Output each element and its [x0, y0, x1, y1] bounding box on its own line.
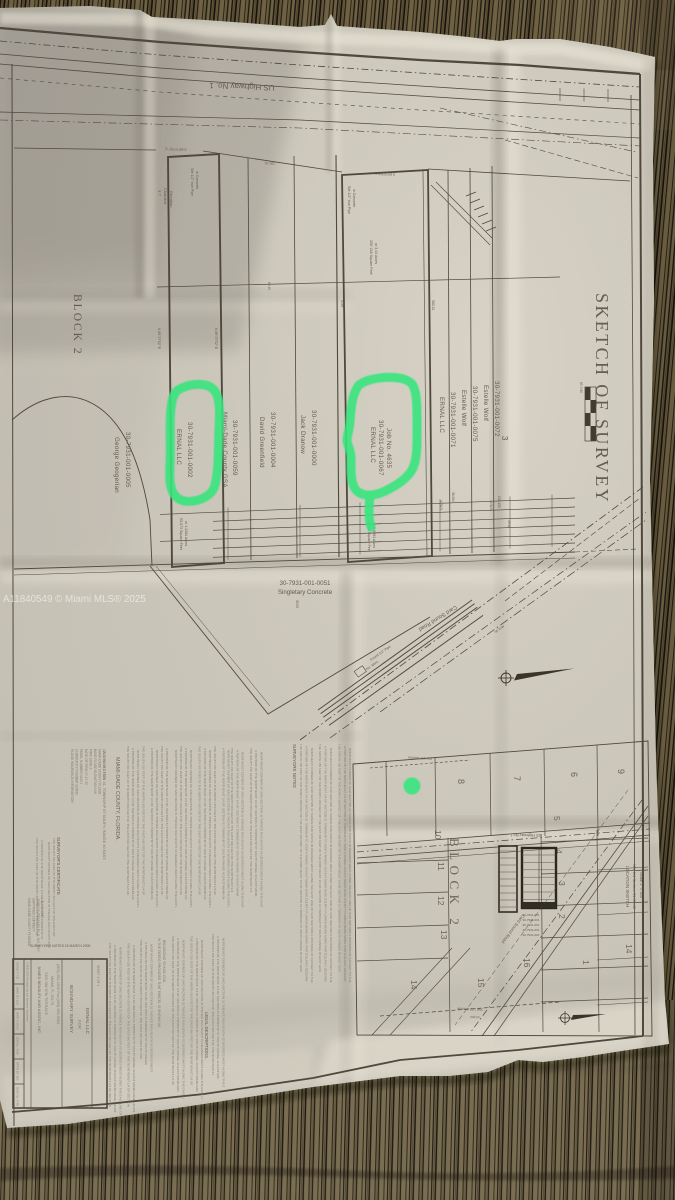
svg-text:THE SOUTH 150 FEET OF THE NORT: THE SOUTH 150 FEET OF THE NORTH 300 FEET… — [337, 744, 341, 972]
svg-text:FIRM ZONE X: FIRM ZONE X — [88, 749, 92, 770]
svg-text:DATE OF FIRM 07-17-95: DATE OF FIRM 07-17-95 — [84, 749, 88, 785]
svg-text:SW 157 Avenue: SW 157 Avenue — [408, 756, 432, 761]
svg-text:APP'D BY JEB: APP'D BY JEB — [16, 1062, 20, 1081]
svg-text:A PORTION OF THE NORTHEAST 1/4: A PORTION OF THE NORTHEAST 1/4 OF SECTIO… — [216, 936, 220, 1080]
svg-text:A PORTION OF THE NORTHEAST 1/4: A PORTION OF THE NORTHEAST 1/4 OF SECTIO… — [150, 748, 154, 900]
svg-text:NORTHEAST CORNER OF SAID SECTI: NORTHEAST CORNER OF SAID SECTION 31 THEN… — [189, 750, 193, 908]
svg-text:2: 2 — [557, 914, 567, 919]
svg-text:NORTHEAST CORNER OF SAID SECTI: NORTHEAST CORNER OF SAID SECTION 31 THEN… — [118, 947, 122, 1118]
svg-text:BASE FLOOD ELEVATION N/A: BASE FLOOD ELEVATION N/A — [93, 749, 97, 795]
svg-text:N 89°: N 89° — [340, 300, 344, 309]
svg-text:150' 248 Square Feet: 150' 248 Square Feet — [369, 240, 373, 274]
svg-text:LOCATION SKETCH: LOCATION SKETCH — [625, 866, 630, 907]
svg-text:BELONGING TO KOK COK.: BELONGING TO KOK COK. — [162, 940, 166, 983]
svg-text:A PORTION OF THE NORTHEAST 1/4: A PORTION OF THE NORTHEAST 1/4 OF SECTIO… — [203, 748, 207, 900]
svg-text:NORTHEAST CORNER OF SAID SECTI: NORTHEAST CORNER OF SAID SECTION 31 THEN… — [310, 748, 314, 983]
svg-text:ERNAL LLC: ERNAL LLC — [369, 427, 376, 463]
svg-text:Estelle Wolf: Estelle Wolf — [460, 390, 467, 426]
svg-text:12: 12 — [436, 896, 446, 906]
svg-text:PANEL NUMBER 0445 J: PANEL NUMBER 0445 J — [79, 749, 83, 785]
svg-text:FLOOD INSURANCE INFORMATION: FLOOD INSURANCE INFORMATION — [70, 749, 74, 803]
svg-text:L.B. NO. 6867: L.B. NO. 6867 — [40, 898, 44, 918]
svg-text:DATE 3-15-05: DATE 3-15-05 — [16, 1012, 20, 1030]
svg-text:A PORTION OF THE NORTHEAST 1/4: A PORTION OF THE NORTHEAST 1/4 OF SECTIO… — [144, 942, 148, 1065]
svg-text:A PORTION OF THE NORTHEAST 1/4: A PORTION OF THE NORTHEAST 1/4 OF SECTIO… — [222, 748, 226, 900]
svg-text:A PORTION OF THE NORTHEAST 1/4: A PORTION OF THE NORTHEAST 1/4 OF SECTIO… — [165, 748, 169, 900]
svg-text:30-7931-001-0067: 30-7931-001-0067 — [377, 420, 384, 476]
svg-text:A PORTION OF THE NORTHEAST 1/4: A PORTION OF THE NORTHEAST 1/4 OF SECTIO… — [195, 938, 199, 1093]
svg-text:30-7931-001: 30-7931-001 — [522, 928, 539, 932]
svg-text:NORTHEAST CORNER OF SAID SECTI: NORTHEAST CORNER OF SAID SECTION 31 THEN… — [348, 748, 352, 983]
svg-text:A PORTION OF THE NORTHEAST 1/4: A PORTION OF THE NORTHEAST 1/4 OF SECTIO… — [184, 748, 188, 900]
svg-text:A PORTION OF THE NORTHEAST 1/4: A PORTION OF THE NORTHEAST 1/4 OF SECTIO… — [343, 746, 347, 981]
svg-text:5: 5 — [552, 816, 562, 821]
svg-text:NORTHEAST CORNER OF SAID SECTI: NORTHEAST CORNER OF SAID SECTION 31 THEN… — [174, 750, 178, 908]
svg-text:7: 7 — [512, 776, 522, 781]
svg-text:A11840549 © Miami MLS® 2025: A11840549 © Miami MLS® 2025 — [3, 594, 146, 605]
svg-text:NW 1/4 Section 31-59-40: NW 1/4 Section 31-59-40 — [632, 864, 637, 910]
svg-text:in Concrete: in Concrete — [352, 189, 356, 207]
svg-text:or 1.2284 Acres: or 1.2284 Acres — [184, 521, 188, 546]
svg-text:Job No. 4635: Job No. 4635 — [385, 428, 392, 469]
svg-text:NORTHEAST CORNER OF SAID SECTI: NORTHEAST CORNER OF SAID SECTION 31 THEN… — [200, 940, 204, 1099]
svg-text:3.7': 3.7' — [157, 190, 162, 197]
svg-text:Scale 1" = 300': Scale 1" = 300' — [639, 872, 644, 899]
svg-text:BLOCK 2: BLOCK 2 — [447, 838, 462, 930]
svg-text:THE SOUTH 150 FEET OF THE NORT: THE SOUTH 150 FEET OF THE NORTH 300 FEET… — [211, 934, 215, 1076]
svg-text:THE SOUTH 150 FEET OF THE NORT: THE SOUTH 150 FEET OF THE NORTH 300 FEET… — [249, 748, 253, 892]
svg-text:MIAMI-DADE COUNTY FLOOD: MIAMI-DADE COUNTY FLOOD — [98, 749, 102, 795]
svg-text:THE SOUTH 150 FEET OF THE NORT: THE SOUTH 150 FEET OF THE NORTH 300 FEET… — [160, 746, 164, 895]
svg-text:NORTHEAST CORNER OF SAID SECTI: NORTHEAST CORNER OF SAID SECTION 31 THEN… — [208, 750, 212, 908]
svg-text:JAMES BEASLEY AND ASSOC., INC.: JAMES BEASLEY AND ASSOC., INC. — [37, 966, 42, 1034]
svg-text:Singletary Concrete: Singletary Concrete — [278, 589, 333, 596]
svg-text:36.564: 36.564 — [451, 492, 455, 502]
svg-text:THE SOUTH 150 FEET OF THE NORT: THE SOUTH 150 FEET OF THE NORTH 300 FEET… — [108, 943, 112, 1107]
svg-text:30-7931-001-0051: 30-7931-001-0051 — [280, 580, 331, 587]
svg-text:30.00: 30.00 — [295, 600, 299, 608]
svg-text:ERNAL LLC: ERNAL LLC — [84, 1008, 90, 1034]
svg-text:9: 9 — [616, 769, 626, 774]
svg-text:THE SOUTH 150 FEET OF THE NORT: THE SOUTH 150 FEET OF THE NORTH 300 FEET… — [171, 936, 175, 1085]
svg-text:MIAMI, FL 33173: MIAMI, FL 33173 — [50, 976, 54, 1005]
svg-text:COMMUNITY NUMBER 120635: COMMUNITY NUMBER 120635 — [75, 749, 79, 795]
svg-text:30-7931-001: 30-7931-001 — [522, 933, 539, 937]
svg-text:30-7931-001-0002: 30-7931-001-0002 — [186, 422, 193, 478]
svg-text:DWG. BY JLB: DWG. BY JLB — [16, 987, 20, 1005]
svg-text:or 3.44 Acres: or 3.44 Acres — [374, 243, 378, 264]
svg-text:Chainlink: Chainlink — [163, 188, 168, 204]
svg-text:SHEET 1 OF 1: SHEET 1 OF 1 — [96, 965, 100, 986]
svg-text:A PORTION OF THE NORTHEAST 1/4: A PORTION OF THE NORTHEAST 1/4 OF SECTIO… — [235, 750, 239, 897]
svg-text:N 89°37'52" E: N 89°37'52" E — [157, 328, 161, 350]
svg-text:16: 16 — [522, 958, 532, 968]
svg-text:DWG No. 4759: DWG No. 4759 — [16, 1087, 20, 1106]
svg-text:SCALE 1"=30': SCALE 1"=30' — [16, 962, 20, 980]
svg-text:ERNAL LLC: ERNAL LLC — [175, 429, 182, 465]
svg-text:BOUNDARY SURVEY: BOUNDARY SURVEY — [68, 985, 74, 1034]
svg-text:3: 3 — [500, 436, 509, 441]
svg-text:30-7931-001-0000: 30-7931-001-0000 — [310, 410, 317, 466]
svg-text:THE SOUTH 150 FEET OF THE NORT: THE SOUTH 150 FEET OF THE NORTH 300 FEET… — [52, 838, 56, 937]
svg-text:11: 11 — [436, 862, 446, 871]
svg-text:David Greenfield: David Greenfield — [258, 417, 265, 468]
svg-text:Estelle Wolf: Estelle Wolf — [482, 385, 489, 421]
svg-text:THE SOUTH 150 FEET OF THE NORT: THE SOUTH 150 FEET OF THE NORTH 300 FEET… — [127, 943, 131, 1107]
svg-text:48 W: 48 W — [507, 520, 511, 527]
svg-text:42 W.S.: 42 W.S. — [439, 500, 443, 511]
svg-text:THE SOUTH 150 FEET OF THE NORT: THE SOUTH 150 FEET OF THE NORTH 300 FEET… — [318, 744, 322, 972]
svg-text:THE SOUTH 150 FEET OF THE NORT: THE SOUTH 150 FEET OF THE NORTH 300 FEET… — [141, 746, 145, 895]
svg-text:30-7931-001-0005: 30-7931-001-0005 — [124, 432, 131, 488]
svg-text:30-7931-001-0004: 30-7931-001-0004 — [269, 412, 276, 468]
svg-text:IN THE DEEDS PROVIDED THAT PAR: IN THE DEEDS PROVIDED THAT PARCEL IS SHO… — [157, 938, 161, 1028]
svg-text:44 W.S.: 44 W.S. — [489, 500, 493, 511]
svg-text:NORTHEAST CORNER OF SAID SECTI: NORTHEAST CORNER OF SAID SECTION 31 THEN… — [329, 748, 333, 983]
svg-text:14: 14 — [624, 944, 634, 954]
svg-text:BLOCK 2: BLOCK 2 — [71, 294, 83, 356]
svg-text:NORTHEAST CORNER OF SAID SECTI: NORTHEAST CORNER OF SAID SECTION 31 THEN… — [260, 752, 264, 908]
svg-text:NORTHEAST CORNER OF SAID SECTI: NORTHEAST CORNER OF SAID SECTION 31 THEN… — [136, 750, 140, 908]
svg-text:A PORTION OF THE NORTHEAST 1/4: A PORTION OF THE NORTHEAST 1/4 OF SECTIO… — [132, 945, 136, 1113]
svg-text:THE SOUTH 150 FEET OF THE NORT: THE SOUTH 150 FEET OF THE NORTH 300 FEET… — [126, 746, 130, 895]
svg-text:THE SOUTH 150 FEET OF THE NORT: THE SOUTH 150 FEET OF THE NORTH 300 FEET… — [198, 746, 202, 895]
svg-text:THE SOUTH 150 FEET OF THE NORT: THE SOUTH 150 FEET OF THE NORTH 300 FEET… — [179, 746, 183, 895]
svg-text:N 89°37'52" E: N 89°37'52" E — [214, 328, 218, 350]
svg-text:NORTHEAST CORNER OF SAID SECTI: NORTHEAST CORNER OF SAID SECTION 31 THEN… — [149, 944, 153, 1072]
svg-text:CERTIFIED CORRECT: CERTIFIED CORRECT — [31, 898, 35, 931]
svg-text:NORTHEAST CORNER OF SAID SECTI: NORTHEAST CORNER OF SAID SECTION 31 THEN… — [241, 752, 245, 908]
svg-text:15: 15 — [476, 978, 486, 988]
svg-text:A PORTION OF THE NORTHEAST 1/4: A PORTION OF THE NORTHEAST 1/4 OF SECTIO… — [176, 938, 180, 1093]
svg-text:60 40: 60 40 — [267, 282, 271, 290]
svg-text:A 4635 2005 Revisions by: A 4635 2005 Revisions by and Remarks Gen… — [26, 962, 30, 1022]
svg-text:George Geogerian: George Geogerian — [113, 437, 120, 493]
svg-text:NORTHEAST CORNER OF SAID SECTI: NORTHEAST CORNER OF SAID SECTION 31 THEN… — [155, 750, 159, 908]
svg-text:THE SOUTH 150 FEET OF THE NORT: THE SOUTH 150 FEET OF THE NORTH 300 FEET… — [230, 748, 234, 892]
svg-text:in Concrete: in Concrete — [195, 171, 199, 189]
svg-text:A PORTION OF THE NORTHEAST 1/4: A PORTION OF THE NORTHEAST 1/4 OF SECTIO… — [131, 748, 135, 900]
svg-text:MIAMI-DADE COUNTY FLORIDA: MIAMI-DADE COUNTY FLORIDA — [27, 898, 31, 947]
svg-text:A PORTION OF THE NORTHEAST 1/4: A PORTION OF THE NORTHEAST 1/4 OF SECTIO… — [304, 746, 308, 981]
svg-text:A PORTION OF THE NORTHEAST 1/4: A PORTION OF THE NORTHEAST 1/4 OF SECTIO… — [254, 750, 258, 897]
svg-text:MIAMI-DADE COUNTY, FLORIDA.: MIAMI-DADE COUNTY, FLORIDA. — [114, 757, 120, 841]
svg-text:7400 SW 87th TERRACE: 7400 SW 87th TERRACE — [44, 972, 48, 1016]
svg-text:A PORTION OF THE NORTHEAST 1/4: A PORTION OF THE NORTHEAST 1/4 OF SECTIO… — [324, 746, 328, 981]
svg-text:225.76: 225.76 — [264, 161, 275, 165]
svg-text:30-7931-001-0075: 30-7931-001-0075 — [471, 386, 478, 442]
svg-text:S 89°37'52" E: S 89°37'52" E — [164, 147, 186, 152]
svg-text:THE SOUTH 150 FEET OF THE NORT: THE SOUTH 150 FEET OF THE NORTH 300 FEET… — [190, 936, 194, 1085]
svg-text:FOR: FOR — [77, 1020, 82, 1029]
svg-text:Elevation: Elevation — [169, 191, 174, 207]
svg-text:JOB No. 4635: JOB No. 4635 — [16, 1037, 20, 1055]
svg-text:1: 1 — [581, 960, 591, 965]
svg-text:Set 1/2" Iron Pipe: Set 1/2" Iron Pipe — [190, 168, 194, 196]
svg-text:ERNAL LLC: ERNAL LLC — [438, 397, 445, 433]
svg-text:ALL IN SECTION 31, TOWNSHIP 57: ALL IN SECTION 31, TOWNSHIP 57 SOUTH, RA… — [102, 751, 106, 860]
svg-text:8: 8 — [456, 779, 466, 784]
svg-text:583.31: 583.31 — [431, 300, 435, 310]
svg-text:US Highway No 1: US Highway No 1 — [509, 833, 541, 839]
svg-text:Jack Dranow: Jack Dranow — [299, 415, 306, 454]
svg-text:LEGAL DESCRIPTIONS.: LEGAL DESCRIPTIONS. — [204, 1012, 209, 1059]
svg-text:Set 1/2" Iron Pipe: Set 1/2" Iron Pipe — [347, 186, 351, 214]
svg-text:THE SOUTH 150 FEET OF THE NORT: THE SOUTH 150 FEET OF THE NORTH 300 FEET… — [213, 746, 217, 895]
svg-text:30-7931-001-0059: 30-7931-001-0059 — [231, 420, 238, 476]
svg-text:NORTHEAST CORNER OF SAID SECTI: NORTHEAST CORNER OF SAID SECTION 31 THEN… — [181, 940, 185, 1099]
svg-text:50.000: 50.000 — [470, 1015, 480, 1019]
svg-text:30-7931-001-0072: 30-7931-001-0072 — [493, 381, 500, 437]
svg-text:A PORTION OF THE NORTHEAST 1/4: A PORTION OF THE NORTHEAST 1/4 OF SECTIO… — [113, 945, 117, 1113]
svg-text:105.130: 105.130 — [497, 496, 501, 508]
svg-text:30-7931-001: 30-7931-001 — [522, 923, 539, 927]
svg-text:SURVEYORS NOTES 15 MARCH 2005: SURVEYORS NOTES 15 MARCH 2005 — [30, 944, 91, 948]
svg-text:3: 3 — [557, 881, 567, 886]
svg-text:14: 14 — [409, 980, 419, 990]
svg-text:NORTHEAST CORNER OF SAID SECTI: NORTHEAST CORNER OF SAID SECTION 31 THEN… — [221, 938, 225, 1088]
svg-text:13: 13 — [439, 930, 449, 940]
svg-text:SKETCH OF SURVEY: SKETCH OF SURVEY — [592, 293, 612, 504]
svg-text:SURVEYORS NOTES: SURVEYORS NOTES — [292, 744, 297, 788]
svg-text:53,073 Square Feet: 53,073 Square Feet — [179, 518, 183, 550]
svg-text:10: 10 — [433, 830, 443, 840]
svg-text:30-7931-001-0071: 30-7931-001-0071 — [449, 392, 456, 448]
svg-text:NORTHEAST CORNER OF SAID SECTI: NORTHEAST CORNER OF SAID SECTION 31 THEN… — [47, 842, 51, 948]
svg-text:60 0 60: 60 0 60 — [579, 382, 583, 393]
svg-text:THE SOUTH 150 FEET OF THE NORT: THE SOUTH 150 FEET OF THE NORTH 300 FEET… — [299, 744, 303, 972]
svg-text:(305) 252-4545 Fax (305) 596-: (305) 252-4545 Fax (305) 596-5964 — [56, 964, 60, 1024]
svg-text:THE SOUTH 150 FEET OF THE NORT: THE SOUTH 150 FEET OF THE NORTH 300 FEET… — [139, 940, 143, 1059]
svg-text:6: 6 — [569, 772, 579, 777]
